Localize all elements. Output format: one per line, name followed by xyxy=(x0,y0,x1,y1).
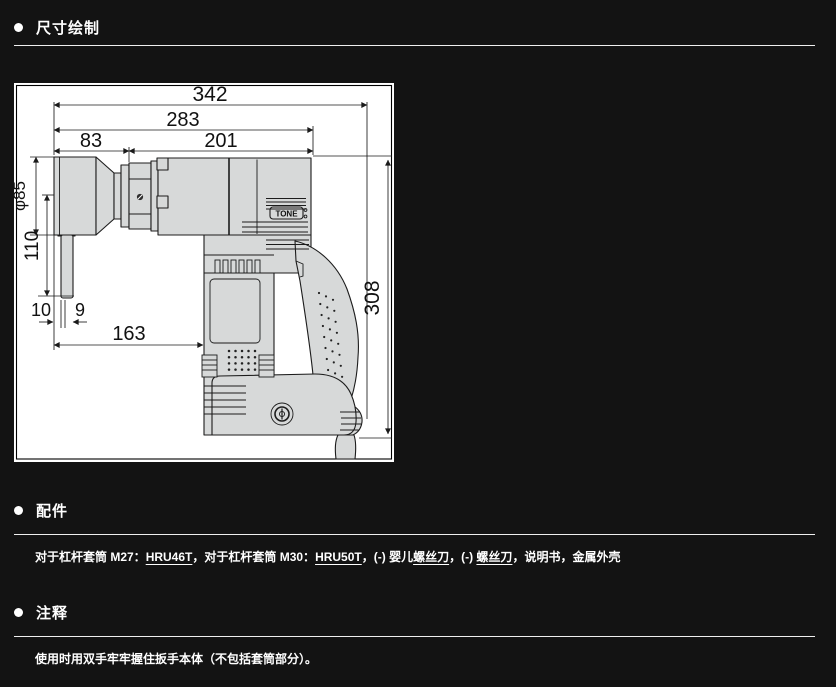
power-cable xyxy=(335,435,355,459)
section-title-notes: 注释 xyxy=(36,602,68,623)
section-title-accessories: 配件 xyxy=(36,500,68,521)
gear-housing xyxy=(158,158,311,235)
accessories-segment: ，(-) xyxy=(449,550,476,564)
section-header-notes: 注释 xyxy=(14,603,836,621)
dimension-drawing: TONE 342 283 83 201 xyxy=(14,83,394,462)
dimension-drawing-panel: TONE 342 283 83 201 xyxy=(14,83,394,462)
accessories-segment: ，说明书，金属外壳 xyxy=(512,550,620,564)
accessories-term-screwdriver: 螺丝刀 xyxy=(413,550,449,564)
notes-text: 使用时用双手牢牢握住扳手本体（不包括套筒部分）。 xyxy=(35,650,317,667)
dim-lever-offset: 10 xyxy=(31,300,51,320)
link-hru50t[interactable]: HRU50T xyxy=(315,550,362,564)
section-divider xyxy=(14,636,815,637)
dim-total-height: 308 xyxy=(361,280,384,315)
section-divider xyxy=(14,534,815,535)
dim-motor-length: 201 xyxy=(204,130,237,152)
dim-head-to-body: 163 xyxy=(112,323,145,345)
socket-head xyxy=(54,157,96,235)
accessories-segment: ，(-) 婴儿 xyxy=(362,550,413,564)
emblem xyxy=(271,403,293,425)
accessories-segment: 对于杠杆套筒 M27： xyxy=(35,550,146,564)
dim-lever-length: 110 xyxy=(22,231,43,261)
section-header-dimensions: 尺寸绘制 xyxy=(14,18,836,36)
accessories-segment: ，对于杠杆套筒 M30： xyxy=(192,550,315,564)
accessories-text: 对于杠杆套筒 M27：HRU46T，对于杠杆套筒 M30：HRU50T，(-) … xyxy=(35,548,620,565)
link-hru46t[interactable]: HRU46T xyxy=(146,550,193,564)
section-title-dimensions: 尺寸绘制 xyxy=(36,17,100,38)
brand-logo-text: TONE xyxy=(275,210,298,219)
bullet-icon xyxy=(14,23,23,32)
accessories-term-screwdriver: 螺丝刀 xyxy=(476,550,512,564)
bullet-icon xyxy=(14,506,23,515)
motor-housing xyxy=(212,374,356,435)
section-header-accessories: 配件 xyxy=(14,501,836,519)
dim-total-length: 342 xyxy=(192,83,227,106)
section-divider xyxy=(14,45,815,46)
dim-socket-diameter: φ85 xyxy=(14,181,29,211)
dim-lever-width: 9 xyxy=(75,300,85,320)
dim-body-length: 283 xyxy=(166,109,199,131)
bullet-icon xyxy=(14,608,23,617)
dim-head-length: 83 xyxy=(80,130,102,152)
